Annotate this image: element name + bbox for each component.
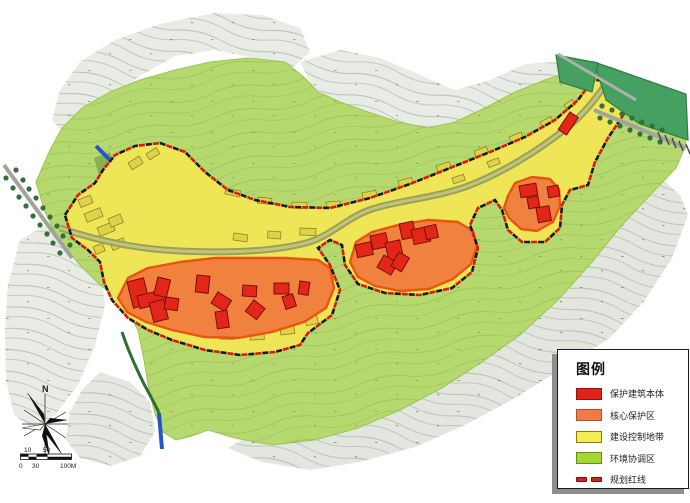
legend: 图例 保护建筑本体 核心保护区 建设控制地带 环境协调区 规划红线 <box>557 349 689 489</box>
scale-upper-50: 50 <box>43 447 51 454</box>
legend-swatch-environment-coordination <box>576 452 602 464</box>
legend-item-label: 环境协调区 <box>610 452 655 465</box>
legend-swatch-core-protection <box>576 409 602 421</box>
legend-item-construction-control: 建设控制地带 <box>576 430 688 444</box>
legend-swatch-planning-red-line <box>576 477 602 482</box>
legend-item-protected-building: 保护建筑本体 <box>576 387 688 401</box>
scale-lower-30: 30 <box>32 463 40 470</box>
legend-title: 图例 <box>576 359 688 379</box>
legend-item-core-protection: 核心保护区 <box>576 408 688 422</box>
legend-item-label: 建设控制地带 <box>610 430 664 443</box>
legend-item-label: 规划红线 <box>610 473 646 486</box>
scale-lower-100m: 100M <box>60 463 76 470</box>
scale-upper-10: 10 <box>24 447 32 454</box>
legend-swatch-construction-control <box>576 431 602 443</box>
planning-map-page: N 10 50 0 30 100M 图例 保护 <box>0 0 690 503</box>
legend-swatch-protected-building <box>576 388 602 400</box>
legend-item-planning-red-line: 规划红线 <box>576 473 688 487</box>
legend-item-environment-coordination: 环境协调区 <box>576 451 688 465</box>
scale-bar: 10 50 0 30 100M <box>19 447 76 470</box>
scale-lower-0: 0 <box>19 463 23 470</box>
legend-item-label: 保护建筑本体 <box>610 387 664 400</box>
legend-item-label: 核心保护区 <box>610 409 655 422</box>
compass-north-label: N <box>42 384 49 394</box>
